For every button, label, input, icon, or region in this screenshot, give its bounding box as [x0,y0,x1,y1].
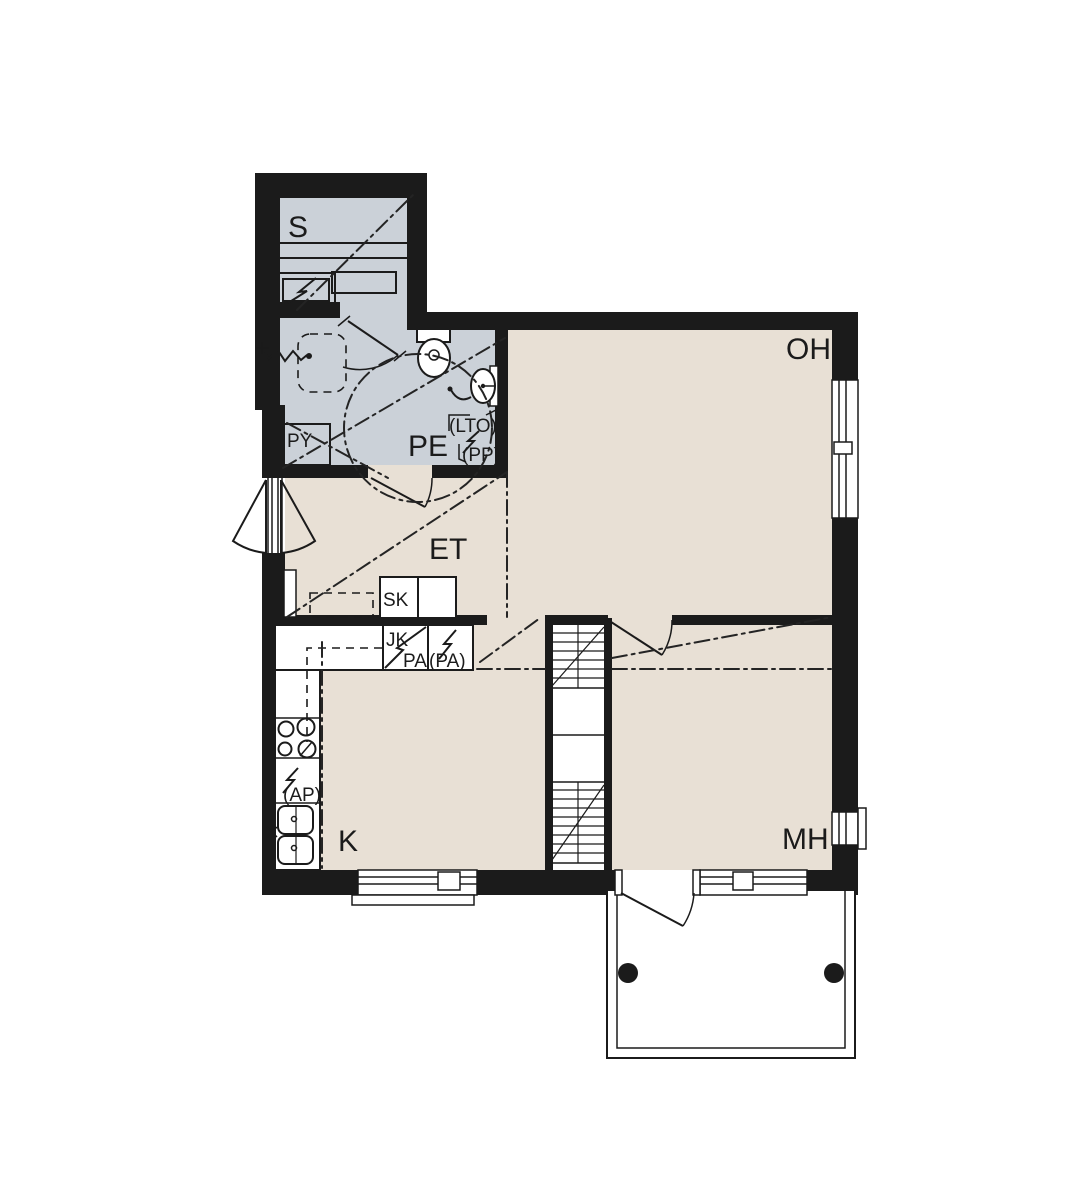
label-freezer-reservation: (PA) [429,651,466,672]
label-freezer: PA [403,651,427,672]
label-washing-machine-reservation: (PP) [462,445,500,466]
wall-closet-right [604,618,612,870]
wall-left-mid [262,553,285,625]
kitchen-window-mullion [438,872,460,890]
balcony-post-right [824,963,844,983]
wall-sauna-bottom [257,302,340,318]
balcony-door-opening [615,870,700,895]
wall-sauna-right [407,173,427,330]
shower-head [306,353,312,359]
washbasin-hose-end [448,387,453,392]
floor-plan-drawing: S PE ET OH K MH PY SK JK PA (PA) (LTO) (… [0,0,1085,1200]
duct-box [284,570,296,617]
floor-plan-page: S PE ET OH K MH PY SK JK PA (PA) (LTO) (… [0,0,1085,1200]
bedroom-window-mullion [733,872,753,890]
washbasin-drain [481,384,485,388]
label-dishwasher-reservation: (AP) [283,785,321,806]
label-kitchen: K [338,825,358,858]
wall-bottom-mid [477,870,615,895]
label-cleaning-cabinet: SK [383,590,409,611]
label-bathroom: PE [408,430,448,463]
entrance-door-swing-out [233,480,266,553]
balcony-door-frame2 [693,870,700,895]
balcony-post-left [618,963,638,983]
balcony-door-frame [615,870,622,895]
label-laundry-cabinet: PY [287,431,313,452]
label-bedroom: MH [782,823,829,856]
toilet-bowl [418,339,450,377]
bedroom-side-window-sill [858,808,866,849]
wall-bottom-left [262,870,358,895]
kitchen-window-sill [352,895,474,905]
wall-closet-left [545,618,553,870]
label-sauna: S [288,211,308,244]
label-hallway: ET [429,533,467,566]
wall-right-mid [832,518,858,812]
wall-bedroom-top [672,615,832,625]
wall-top [407,312,858,330]
balcony-outline [607,890,855,1058]
wall-sauna-top [255,173,427,198]
wall-right-upper [832,312,858,380]
hall-cabinet-box [418,577,456,618]
balcony [607,890,855,1058]
label-living-room: OH [786,333,831,366]
wall-closet-top [545,615,608,625]
living-room-window-mullion [834,442,852,454]
label-heat-recovery: (LTO) [449,416,497,437]
wall-bathroom-bottom-right [432,465,505,478]
bedroom-side-window [832,812,858,845]
label-fridge: JK [386,630,409,651]
